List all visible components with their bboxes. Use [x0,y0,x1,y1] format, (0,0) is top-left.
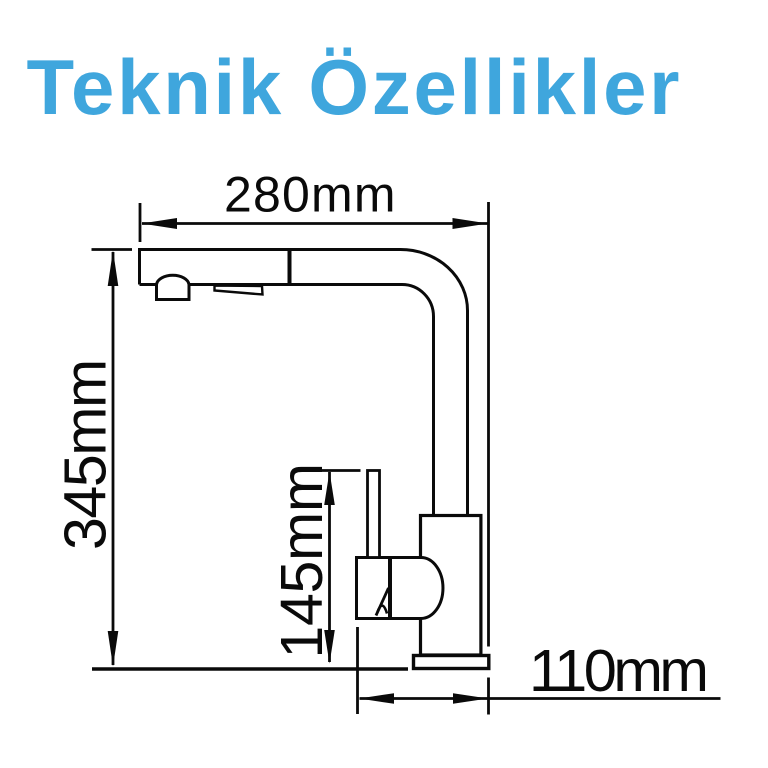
svg-text:145mm: 145mm [269,463,335,658]
svg-text:110mm: 110mm [529,637,706,704]
svg-text:280mm: 280mm [224,167,397,223]
svg-text:345mm: 345mm [52,360,118,550]
svg-text:Teknik Özellikler: Teknik Özellikler [27,43,683,131]
